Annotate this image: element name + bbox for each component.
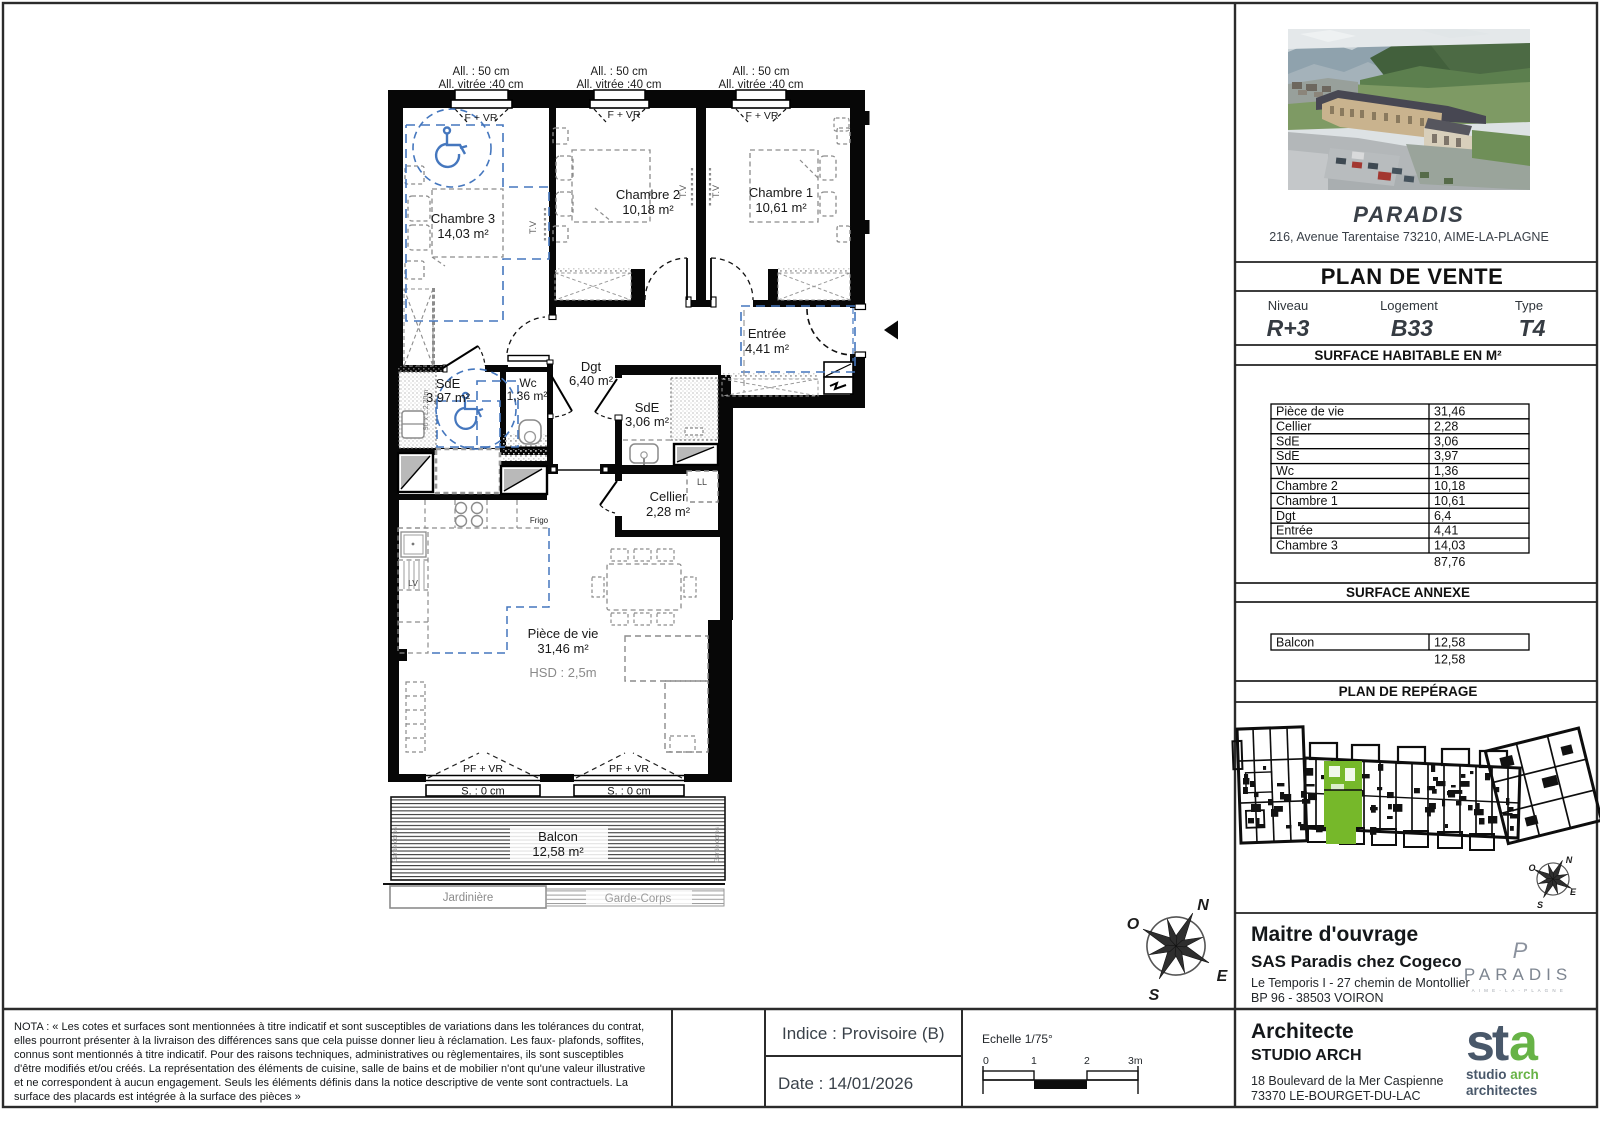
svg-text:R+3: R+3 xyxy=(1267,315,1310,341)
svg-text:S: S xyxy=(1149,987,1160,1004)
svg-text:S: S xyxy=(1537,900,1543,910)
svg-text:Balcon: Balcon xyxy=(538,829,578,844)
svg-text:Logement: Logement xyxy=(1380,298,1438,313)
svg-text:Frigo: Frigo xyxy=(530,516,549,525)
svg-text:Chambre 1: Chambre 1 xyxy=(1276,494,1338,508)
svg-text:All. : 50 cm: All. : 50 cm xyxy=(733,66,790,78)
svg-text:216, Avenue Tarentaise 73210,: 216, Avenue Tarentaise 73210, AIME-LA-PL… xyxy=(1269,230,1549,244)
svg-text:Jardinière: Jardinière xyxy=(443,892,494,904)
svg-text:Garde corps: Garde corps xyxy=(714,826,721,863)
svg-text:connus sont mentionnés à titre: connus sont mentionnés à titre indicatif… xyxy=(14,1049,624,1061)
svg-text:Type: Type xyxy=(1515,298,1543,313)
svg-text:Entrée: Entrée xyxy=(1276,524,1313,538)
svg-text:2: 2 xyxy=(1084,1055,1090,1067)
svg-text:3,97 m²: 3,97 m² xyxy=(426,390,471,405)
svg-text:studio arch: studio arch xyxy=(1466,1067,1539,1082)
svg-text:31,46: 31,46 xyxy=(1434,405,1465,419)
svg-text:Date : 14/01/2026: Date : 14/01/2026 xyxy=(778,1074,913,1093)
svg-text:Wc: Wc xyxy=(1276,464,1294,478)
svg-text:T4: T4 xyxy=(1519,315,1546,341)
svg-text:14,03 m²: 14,03 m² xyxy=(437,226,489,241)
svg-text:All. vitrée :40 cm: All. vitrée :40 cm xyxy=(719,79,804,91)
svg-text:A I M E - L A - P L A G N E: A I M E - L A - P L A G N E xyxy=(1472,988,1565,993)
svg-text:6,40 m²: 6,40 m² xyxy=(569,373,614,388)
svg-text:PF + VR: PF + VR xyxy=(609,763,649,775)
svg-text:F + VR: F + VR xyxy=(746,110,779,122)
svg-text:Dgt: Dgt xyxy=(581,359,602,374)
svg-text:T.V: T.V xyxy=(528,221,538,234)
svg-text:SURFACE ANNEXE: SURFACE ANNEXE xyxy=(1346,585,1470,600)
svg-text:Chambre 1: Chambre 1 xyxy=(749,185,813,200)
svg-text:PF + VR: PF + VR xyxy=(463,763,503,775)
svg-text:10,18: 10,18 xyxy=(1434,479,1465,493)
svg-text:F + VR: F + VR xyxy=(465,112,498,124)
svg-text:Indice : Provisoire (B): Indice : Provisoire (B) xyxy=(782,1024,945,1043)
svg-text:SdE: SdE xyxy=(635,400,660,415)
svg-text:2,28: 2,28 xyxy=(1434,419,1458,433)
svg-text:3m: 3m xyxy=(1128,1055,1143,1067)
svg-text:E: E xyxy=(1570,887,1577,897)
svg-text:a: a xyxy=(1509,1014,1539,1072)
svg-text:4,41: 4,41 xyxy=(1434,524,1458,538)
svg-text:E: E xyxy=(1217,968,1229,985)
svg-text:S. : 0 cm: S. : 0 cm xyxy=(461,786,504,798)
svg-text:NOTA : « Les cotes et surfaces: NOTA : « Les cotes et surfaces sont ment… xyxy=(14,1021,644,1033)
svg-text:1,36: 1,36 xyxy=(1434,464,1458,478)
svg-text:4,41 m²: 4,41 m² xyxy=(745,341,790,356)
svg-text:Niveau: Niveau xyxy=(1268,298,1308,313)
svg-text:Chambre 2: Chambre 2 xyxy=(1276,479,1338,493)
svg-text:et ne correspondent à aucun en: et ne correspondent à aucun engagement. … xyxy=(14,1077,629,1089)
svg-text:10,61 m²: 10,61 m² xyxy=(755,200,807,215)
svg-text:HSD : 2,5m: HSD : 2,5m xyxy=(529,665,596,680)
svg-text:Garde corps: Garde corps xyxy=(392,826,399,863)
svg-text:Dgt: Dgt xyxy=(1276,509,1296,523)
svg-text:SAS Paradis chez Cogeco: SAS Paradis chez Cogeco xyxy=(1251,952,1462,971)
svg-text:Chambre 3: Chambre 3 xyxy=(1276,539,1338,553)
svg-text:10,18 m²: 10,18 m² xyxy=(622,202,674,217)
svg-text:73370 LE-BOURGET-DU-LAC: 73370 LE-BOURGET-DU-LAC xyxy=(1251,1089,1421,1103)
svg-text:Echelle 1/75°: Echelle 1/75° xyxy=(982,1032,1053,1046)
svg-text:N: N xyxy=(1566,855,1573,865)
svg-text:87,76: 87,76 xyxy=(1434,555,1465,569)
svg-text:31,46 m²: 31,46 m² xyxy=(537,641,589,656)
svg-text:LL: LL xyxy=(697,477,707,487)
svg-text:Chambre 2: Chambre 2 xyxy=(616,187,680,202)
svg-text:3,06: 3,06 xyxy=(1434,434,1458,448)
svg-text:T.V: T.V xyxy=(711,185,721,198)
svg-text:SdE: SdE xyxy=(1276,434,1300,448)
svg-text:6,4: 6,4 xyxy=(1434,509,1451,523)
svg-text:Chambre 3: Chambre 3 xyxy=(431,211,495,226)
svg-text:st: st xyxy=(1466,1014,1509,1072)
svg-text:PARADIS: PARADIS xyxy=(1353,202,1464,227)
svg-text:SURFACE HABITABLE EN M²: SURFACE HABITABLE EN M² xyxy=(1314,348,1502,363)
svg-text:0: 0 xyxy=(983,1055,989,1067)
svg-text:surface des placards est intég: surface des placards est intégrée à la s… xyxy=(14,1091,301,1103)
svg-text:3,06 m²: 3,06 m² xyxy=(625,414,670,429)
svg-text:SdE: SdE xyxy=(1276,449,1300,463)
svg-text:Wc: Wc xyxy=(519,376,536,390)
svg-text:O: O xyxy=(1528,863,1535,873)
svg-text:18 Boulevard de la Mer Caspien: 18 Boulevard de la Mer Caspienne xyxy=(1251,1074,1444,1088)
svg-text:14,03: 14,03 xyxy=(1434,539,1465,553)
svg-text:STUDIO ARCH: STUDIO ARCH xyxy=(1251,1047,1362,1064)
svg-text:12,58: 12,58 xyxy=(1434,636,1465,650)
svg-text:1,36 m²: 1,36 m² xyxy=(507,389,548,403)
svg-text:Balcon: Balcon xyxy=(1276,636,1314,650)
svg-text:PLAN DE REPÉRAGE: PLAN DE REPÉRAGE xyxy=(1339,684,1478,699)
svg-text:All. vitrée :40 cm: All. vitrée :40 cm xyxy=(439,79,524,91)
svg-text:Maitre d'ouvrage: Maitre d'ouvrage xyxy=(1251,923,1418,946)
svg-text:PARADIS: PARADIS xyxy=(1464,965,1572,984)
svg-text:d'être modifiés et/ou créés. L: d'être modifiés et/ou créés. La représen… xyxy=(14,1063,645,1075)
svg-text:Cellier: Cellier xyxy=(1276,419,1311,433)
svg-text:O: O xyxy=(1127,916,1140,933)
svg-text:architectes: architectes xyxy=(1466,1083,1537,1098)
svg-text:LV: LV xyxy=(408,578,418,588)
svg-text:SdE: SdE xyxy=(436,376,461,391)
svg-text:3,97: 3,97 xyxy=(1434,449,1458,463)
svg-text:Pièce de vie: Pièce de vie xyxy=(1276,405,1344,419)
svg-text:F + VR: F + VR xyxy=(608,109,641,121)
svg-text:Le Temporis I - 27 chemin de M: Le Temporis I - 27 chemin de Montollier xyxy=(1251,976,1470,990)
svg-text:10,61: 10,61 xyxy=(1434,494,1465,508)
svg-text:All. vitrée :40 cm: All. vitrée :40 cm xyxy=(577,79,662,91)
svg-text:PLAN DE VENTE: PLAN DE VENTE xyxy=(1321,264,1504,289)
svg-text:Garde-Corps: Garde-Corps xyxy=(605,893,672,905)
svg-text:Entrée: Entrée xyxy=(748,326,786,341)
svg-text:S. : 0 cm: S. : 0 cm xyxy=(607,786,650,798)
svg-text:All. : 50 cm: All. : 50 cm xyxy=(453,66,510,78)
svg-text:Cellier: Cellier xyxy=(650,489,688,504)
svg-text:B33: B33 xyxy=(1391,315,1433,341)
svg-text:2,28 m²: 2,28 m² xyxy=(646,504,691,519)
svg-text:elles pourront présenter à la: elles pourront présenter à la livraison … xyxy=(14,1035,644,1047)
svg-text:Pièce de vie: Pièce de vie xyxy=(528,626,599,641)
svg-text:12,58: 12,58 xyxy=(1434,653,1465,667)
svg-text:12,58 m²: 12,58 m² xyxy=(532,844,584,859)
svg-text:P: P xyxy=(1513,938,1528,963)
svg-text:BP 96 - 38503 VOIRON: BP 96 - 38503 VOIRON xyxy=(1251,991,1383,1005)
svg-text:1: 1 xyxy=(1031,1055,1037,1067)
svg-text:N: N xyxy=(1197,897,1209,914)
svg-text:All. : 50 cm: All. : 50 cm xyxy=(591,66,648,78)
svg-text:Architecte: Architecte xyxy=(1251,1020,1354,1043)
